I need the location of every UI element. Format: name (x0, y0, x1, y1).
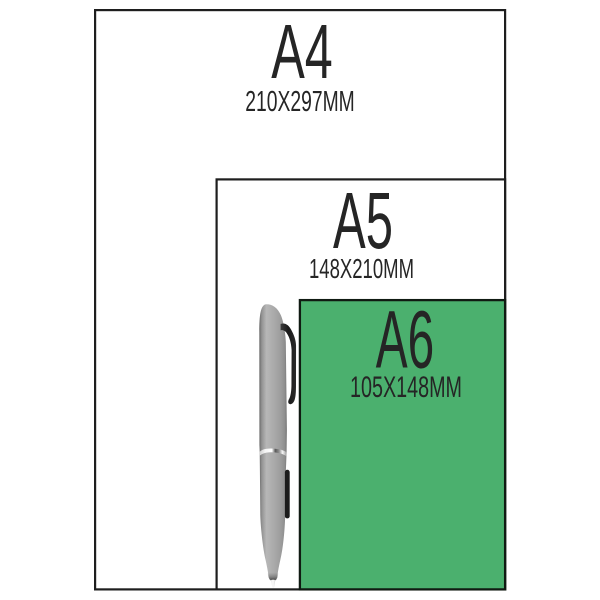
svg-text:148X210MM: 148X210MM (309, 253, 414, 284)
svg-text:A4: A4 (271, 9, 333, 95)
svg-text:105X148MM: 105X148MM (350, 371, 462, 404)
svg-text:210X297MM: 210X297MM (245, 86, 355, 118)
svg-text:A5: A5 (333, 176, 393, 265)
